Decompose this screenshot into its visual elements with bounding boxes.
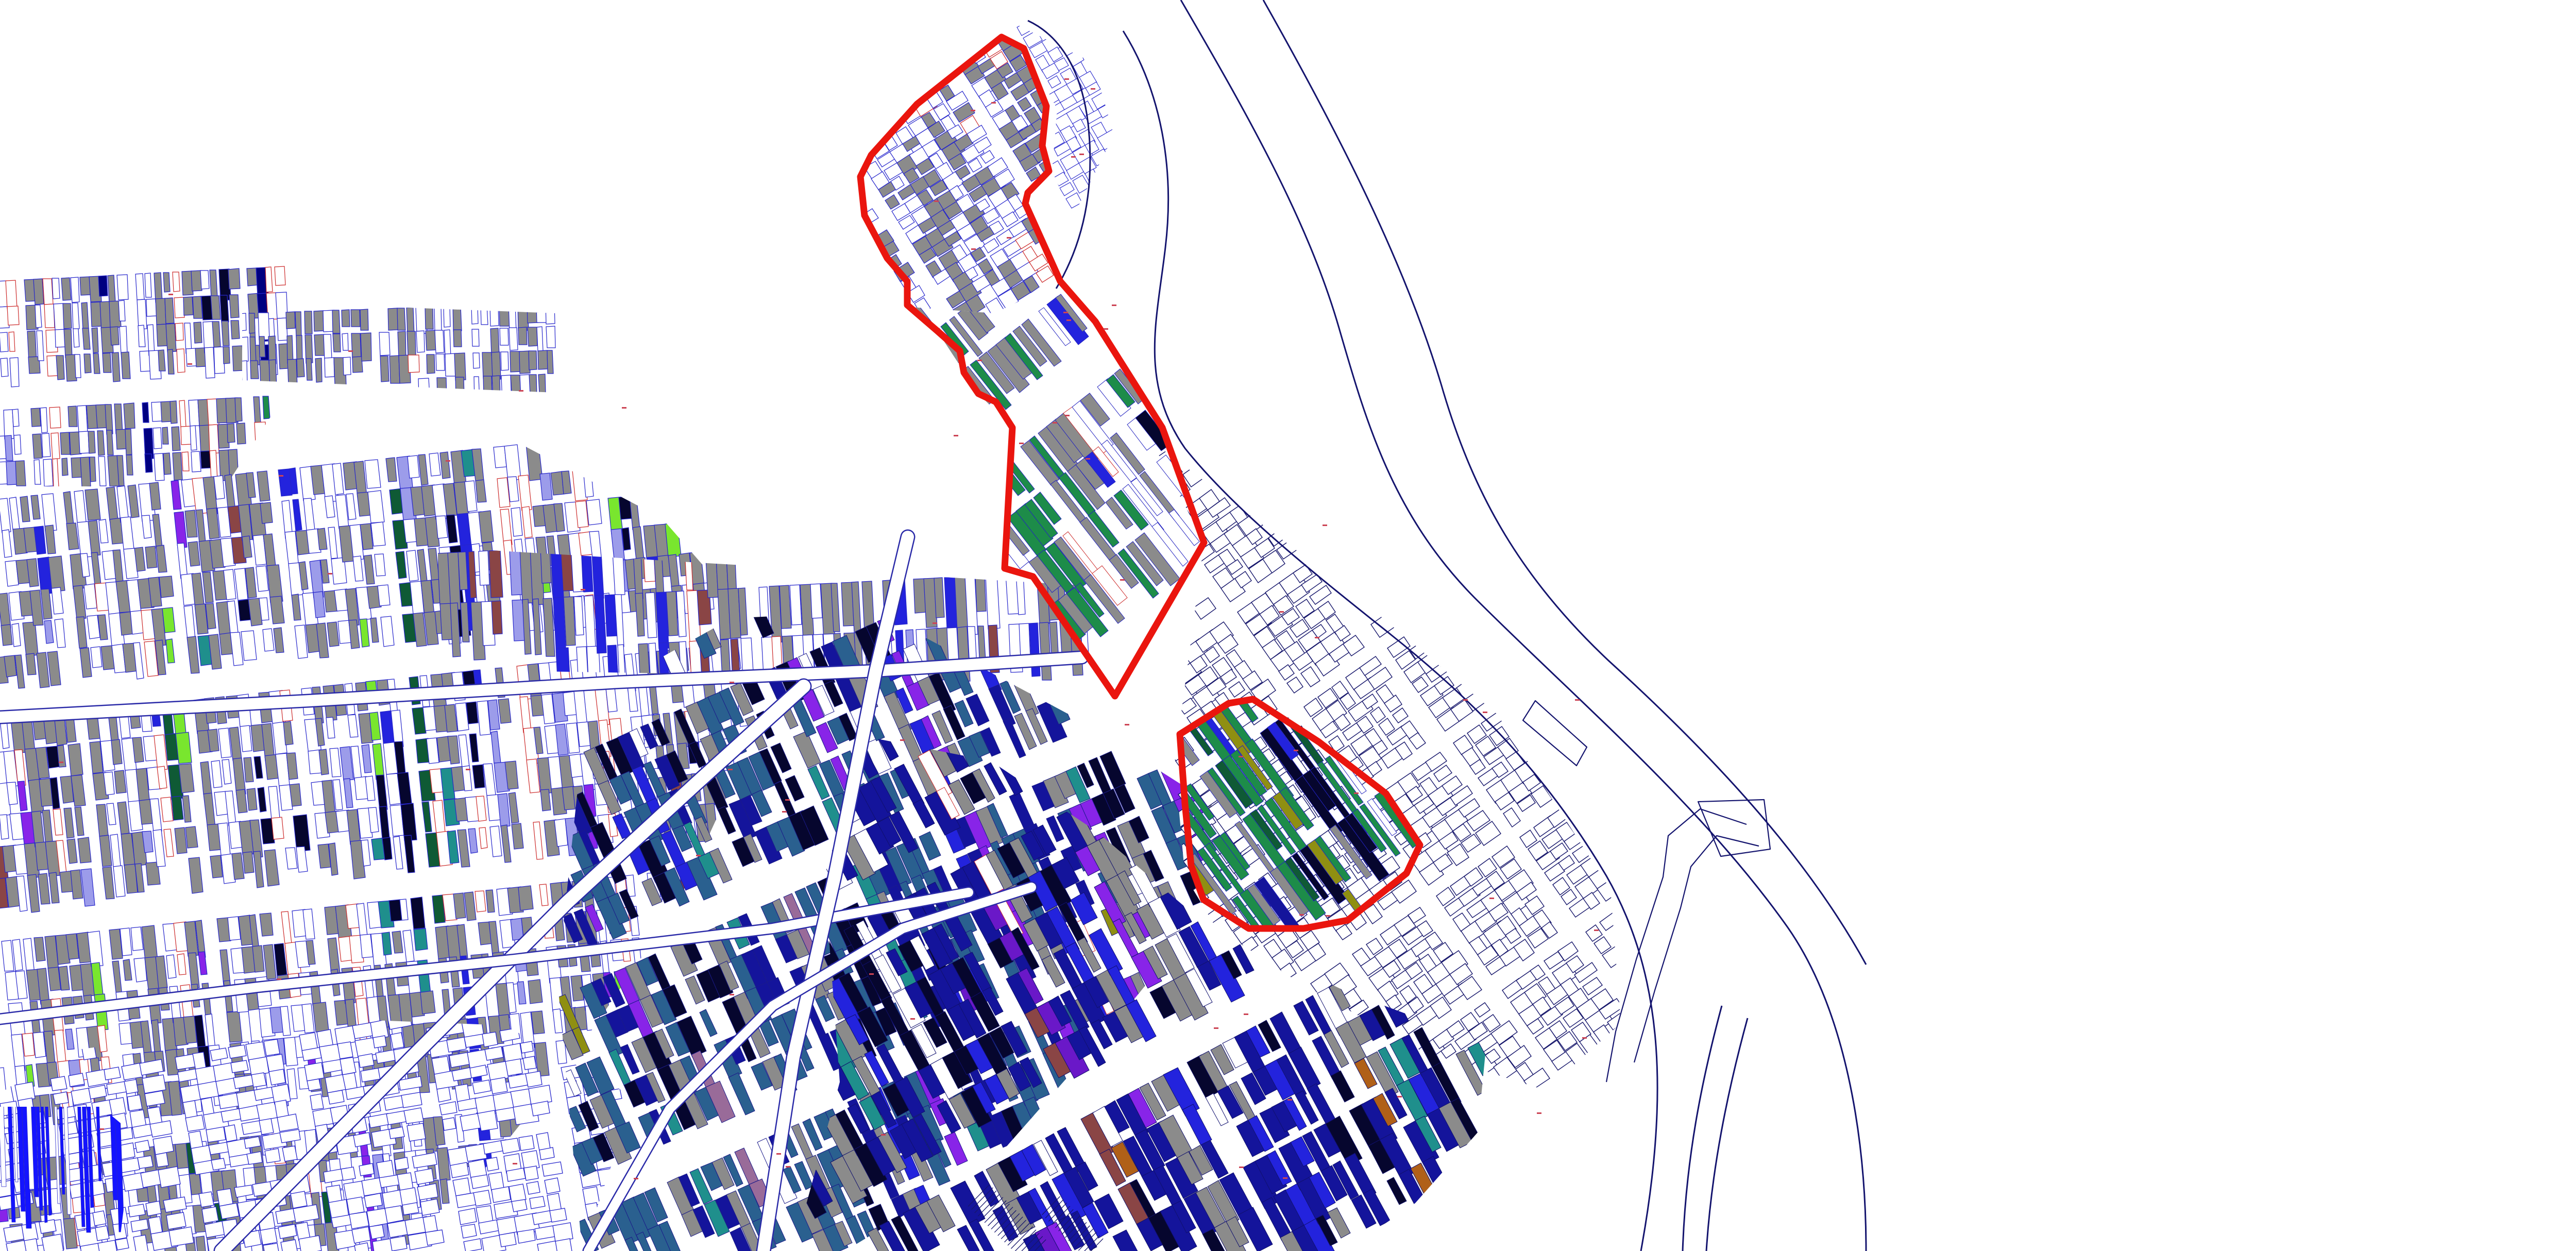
parcel <box>62 458 68 476</box>
parcel <box>328 1090 344 1104</box>
parcel <box>415 1169 434 1185</box>
parcel-label-mark <box>1575 699 1580 701</box>
parcel <box>166 1212 186 1229</box>
parcel <box>167 349 174 374</box>
parcel <box>40 408 47 433</box>
parcel <box>341 1167 355 1180</box>
parcel <box>460 1113 481 1131</box>
parcel <box>420 991 435 1014</box>
parcel <box>162 427 168 444</box>
parcel-label-mark <box>1120 579 1125 581</box>
parcel <box>498 699 511 723</box>
parcel-label-mark <box>1065 415 1070 416</box>
parcel <box>42 433 50 457</box>
parcel <box>360 309 368 330</box>
parcel <box>154 273 162 302</box>
parcel <box>49 407 61 428</box>
parcel <box>547 350 553 374</box>
parcel <box>79 431 89 453</box>
parcel <box>260 1228 277 1245</box>
parcel <box>118 300 125 321</box>
parcel <box>158 350 165 371</box>
parcel <box>39 1220 56 1233</box>
parcel <box>269 1069 285 1085</box>
parcel <box>68 406 77 427</box>
parcel <box>104 1067 121 1080</box>
parcel <box>135 274 144 300</box>
parcel <box>340 1057 356 1075</box>
parcel <box>124 1079 138 1094</box>
parcel <box>520 1041 533 1053</box>
parcel <box>259 1119 274 1135</box>
parcel <box>93 353 100 374</box>
parcel <box>156 1153 168 1167</box>
parcel-label-mark <box>1537 1112 1541 1114</box>
parcel <box>173 452 182 480</box>
parcel <box>414 928 428 951</box>
parcel <box>382 932 392 955</box>
map-viewport <box>0 0 2576 1251</box>
parcel <box>519 1136 534 1151</box>
parcel <box>44 304 55 328</box>
parcel <box>220 295 229 323</box>
parcel <box>183 297 193 315</box>
parcel <box>33 1032 46 1058</box>
parcel <box>179 764 194 793</box>
parcel <box>1 358 8 377</box>
parcel <box>34 460 41 484</box>
parcel-label-mark <box>99 1128 104 1130</box>
parcel <box>313 1002 329 1032</box>
parcel <box>337 1042 353 1059</box>
parcel <box>526 1071 542 1087</box>
parcel-label-mark <box>728 769 733 770</box>
parcel <box>227 424 235 443</box>
parcel-label-mark <box>328 573 332 574</box>
parcel <box>249 313 255 333</box>
parcel <box>272 817 284 839</box>
parcel-label-mark <box>785 799 790 801</box>
parcel <box>53 1092 69 1105</box>
parcel <box>304 1062 324 1081</box>
parcel <box>473 1190 491 1206</box>
parcel <box>342 333 348 350</box>
parcel <box>56 356 64 380</box>
parcel <box>177 349 185 373</box>
parcel-label-mark <box>279 475 283 477</box>
parcel <box>453 330 462 347</box>
parcel <box>228 268 240 289</box>
parcel <box>145 1091 165 1106</box>
parcel <box>265 1148 280 1163</box>
parcel <box>50 1076 67 1091</box>
parcel <box>499 1232 516 1247</box>
parcel <box>453 306 462 331</box>
parcel <box>324 334 332 360</box>
parcel <box>500 328 509 345</box>
parcel <box>108 275 115 302</box>
parcel <box>511 375 521 392</box>
parcel-label-mark <box>1239 756 1243 757</box>
parcel <box>307 1079 321 1091</box>
parcel <box>934 578 944 618</box>
parcel <box>120 326 127 354</box>
parcel <box>73 329 79 347</box>
parcel <box>165 298 174 324</box>
parcel-label-mark <box>513 1163 517 1164</box>
parcel <box>352 357 363 373</box>
parcel-label-mark <box>1063 312 1068 313</box>
parcel-label-mark <box>971 248 976 250</box>
parcel <box>408 455 419 478</box>
parcel <box>15 461 26 486</box>
parcel <box>349 1212 369 1229</box>
parcel-label-mark <box>776 1153 781 1155</box>
parcel <box>398 331 406 358</box>
parcel <box>127 1095 142 1111</box>
parcel-label-mark <box>730 682 734 683</box>
parcel-label-mark <box>869 973 874 975</box>
parcel <box>380 356 389 382</box>
parcel-label-mark <box>1125 724 1129 725</box>
parcel <box>154 453 164 481</box>
parcel-label-mark <box>1354 792 1359 794</box>
parcel-label-mark <box>1299 914 1304 916</box>
parcel <box>306 359 312 380</box>
parcel <box>236 423 246 444</box>
parcel-label-mark <box>954 435 958 436</box>
parcel-label-mark <box>1463 699 1468 701</box>
parcel-label-mark <box>1066 319 1071 321</box>
parcel <box>333 334 341 352</box>
parcel <box>145 273 151 297</box>
parcel-label-mark <box>1007 237 1011 239</box>
parcel <box>361 333 371 361</box>
parcel <box>117 275 128 300</box>
parcel <box>416 331 425 352</box>
parcel <box>391 1033 404 1049</box>
parcel <box>404 1108 423 1124</box>
parcel <box>365 460 381 488</box>
parcel <box>297 359 304 377</box>
parcel-label-mark <box>933 622 937 624</box>
parcel <box>159 576 174 598</box>
parcel <box>121 352 130 379</box>
parcel <box>505 1059 522 1076</box>
parcel <box>200 271 209 289</box>
parcel <box>489 550 503 598</box>
parcel <box>31 408 41 427</box>
parcel <box>231 320 240 339</box>
parcel <box>51 433 60 459</box>
parcel <box>224 1125 237 1142</box>
parcel <box>538 350 548 369</box>
parcel-label-mark <box>1326 915 1330 917</box>
parcel <box>385 1206 403 1223</box>
parcel <box>545 1178 560 1194</box>
parcel <box>241 631 257 661</box>
parcel <box>437 1087 451 1102</box>
parcel-label-mark <box>1489 898 1494 899</box>
parcel <box>138 1156 153 1169</box>
parcel <box>436 354 445 370</box>
parcel <box>97 431 105 455</box>
parcel <box>138 325 145 347</box>
parcel <box>378 585 390 606</box>
parcel <box>528 327 537 346</box>
parcel-label-mark <box>622 407 626 409</box>
parcel <box>43 459 53 486</box>
parcel <box>202 1207 218 1223</box>
parcel <box>388 308 398 330</box>
parcel <box>260 913 273 936</box>
parcel <box>9 332 15 351</box>
parcel <box>175 323 183 341</box>
parcel <box>156 298 166 325</box>
parcel <box>352 1227 370 1243</box>
parcel <box>395 1157 409 1170</box>
parcel <box>518 886 533 910</box>
parcel <box>191 451 201 472</box>
parcel <box>486 1157 499 1171</box>
parcel <box>12 409 19 427</box>
parcel <box>524 1166 538 1180</box>
parcel <box>810 584 822 618</box>
parcel <box>402 1203 419 1215</box>
parcel <box>0 332 8 352</box>
parcel <box>63 303 72 329</box>
parcel <box>26 653 36 675</box>
parcel-label-mark <box>1239 1167 1244 1168</box>
parcel <box>179 400 186 428</box>
parcel <box>546 326 555 348</box>
parcel <box>82 328 90 349</box>
parcel <box>137 299 147 329</box>
parcel-label-mark <box>786 1166 790 1168</box>
parcel <box>212 322 221 347</box>
parcel-label-mark <box>1064 78 1069 80</box>
parcel <box>458 552 468 590</box>
parcel <box>88 431 95 453</box>
parcel <box>93 1211 106 1226</box>
parcel <box>217 1189 233 1206</box>
parcel <box>456 1193 476 1208</box>
parcel <box>98 457 106 486</box>
parcel <box>258 313 269 340</box>
parcel <box>375 554 385 576</box>
parcel <box>264 1039 280 1056</box>
parcel <box>243 852 254 873</box>
parcel <box>347 1197 364 1214</box>
parcel <box>52 278 60 299</box>
parcel <box>1 624 12 646</box>
parcel <box>447 1037 466 1052</box>
parcel <box>33 279 44 305</box>
parcel <box>5 435 13 461</box>
parcel <box>77 405 88 433</box>
parcel <box>351 333 361 359</box>
parcel <box>247 788 257 810</box>
parcel <box>479 551 489 585</box>
parcel-label-mark <box>1315 637 1319 638</box>
parcel <box>401 1092 422 1108</box>
parcel <box>170 401 177 424</box>
parcel <box>61 278 71 300</box>
parcel <box>158 1167 180 1188</box>
parcel <box>232 346 244 371</box>
parcel-label-mark <box>1053 422 1057 424</box>
parcel <box>461 1224 477 1238</box>
parcel <box>176 732 192 764</box>
parcel <box>199 1192 214 1207</box>
parcel <box>304 311 312 334</box>
parcel <box>69 1073 84 1087</box>
parcel-label-mark <box>1071 156 1076 158</box>
parcel <box>528 979 543 1004</box>
parcel <box>459 1208 477 1225</box>
parcel <box>190 426 197 450</box>
parcel <box>1019 623 1030 658</box>
parcel <box>250 361 259 379</box>
parcel <box>173 272 180 292</box>
parcel-label-mark <box>1104 328 1108 330</box>
parcel <box>426 1230 444 1245</box>
parcel <box>153 1136 174 1155</box>
parcel <box>222 321 229 346</box>
parcel <box>128 1204 145 1217</box>
parcel <box>512 1199 527 1212</box>
parcel <box>72 303 79 329</box>
parcel <box>146 299 157 316</box>
parcel <box>359 1163 374 1176</box>
parcel <box>492 601 502 634</box>
parcel <box>163 273 170 292</box>
parcel-label-mark <box>1283 1177 1287 1179</box>
parcel <box>492 1187 511 1203</box>
parcel <box>550 1208 567 1222</box>
parcel <box>538 374 546 394</box>
parcel-label-mark <box>277 978 281 980</box>
parcel <box>78 837 91 863</box>
parcel <box>425 307 433 329</box>
parcel <box>351 310 360 327</box>
parcel <box>478 1110 498 1131</box>
parcel <box>92 328 98 353</box>
parcel <box>247 1152 262 1164</box>
parcel <box>193 296 202 318</box>
parcel <box>574 597 584 635</box>
parcel <box>205 347 215 378</box>
parcel-label-mark <box>1594 929 1599 931</box>
parcel <box>287 359 297 386</box>
parcel <box>527 1181 540 1194</box>
parcel <box>379 332 390 356</box>
parcel <box>80 457 91 487</box>
parcel <box>472 329 479 346</box>
parcel <box>249 1057 269 1076</box>
parcel-label-mark <box>466 769 470 770</box>
parcel <box>453 1178 470 1196</box>
parcel <box>60 432 70 454</box>
parcel-label-mark <box>1397 1096 1402 1097</box>
parcel-label-mark <box>1079 154 1084 155</box>
parcel <box>509 328 518 350</box>
parcel <box>251 1073 266 1087</box>
parcel <box>229 295 239 318</box>
parcel <box>259 336 265 357</box>
parcel <box>95 1226 109 1241</box>
parcel <box>253 397 261 424</box>
parcel <box>6 280 17 309</box>
parcel <box>107 430 113 455</box>
parcel <box>275 1100 289 1118</box>
parcel <box>389 356 400 383</box>
parcel <box>454 353 466 380</box>
parcel <box>142 402 149 422</box>
parcel <box>166 324 176 352</box>
parcel <box>332 310 340 333</box>
parcel <box>115 1238 129 1250</box>
parcel-label-mark <box>1323 525 1327 526</box>
parcel <box>37 331 44 361</box>
parcel <box>206 1127 226 1142</box>
parcel <box>450 1162 469 1178</box>
parcel <box>420 1199 439 1215</box>
parcel <box>263 396 270 419</box>
parcel <box>443 1118 456 1130</box>
parcel <box>64 329 72 358</box>
parcel <box>475 891 486 912</box>
parcel <box>112 352 120 382</box>
parcel <box>211 1158 226 1170</box>
parcel-label-mark <box>348 350 353 352</box>
parcel-label-mark <box>934 200 939 202</box>
parcel-label-mark <box>519 390 523 392</box>
parcel <box>466 702 478 724</box>
parcel <box>537 327 543 351</box>
parcel <box>174 297 184 318</box>
parcel <box>81 302 89 329</box>
parcel <box>163 453 171 475</box>
parcel-label-mark <box>1214 1027 1218 1029</box>
parcel <box>423 1215 437 1232</box>
parcel <box>228 1045 246 1058</box>
parcel <box>539 1147 554 1160</box>
parcel <box>523 1056 536 1070</box>
parcel-label-mark <box>168 294 173 295</box>
parcel <box>7 306 19 325</box>
parcel <box>358 1054 374 1068</box>
parcel <box>373 1036 386 1048</box>
parcel-label-mark <box>1244 1013 1248 1015</box>
parcel <box>145 454 152 472</box>
parcel <box>296 335 302 361</box>
parcel <box>146 1201 161 1216</box>
parcel <box>235 398 242 421</box>
parcel <box>219 1203 239 1219</box>
parcel <box>103 353 111 373</box>
parcel-label-mark <box>977 360 982 361</box>
parcel <box>530 1196 545 1209</box>
parcel <box>10 358 19 387</box>
parcel <box>210 450 217 480</box>
parcel <box>397 308 405 330</box>
parcel <box>342 310 350 327</box>
parcel <box>473 353 480 368</box>
parcel <box>32 434 42 459</box>
parcel <box>250 337 256 363</box>
parcel <box>148 1216 162 1234</box>
